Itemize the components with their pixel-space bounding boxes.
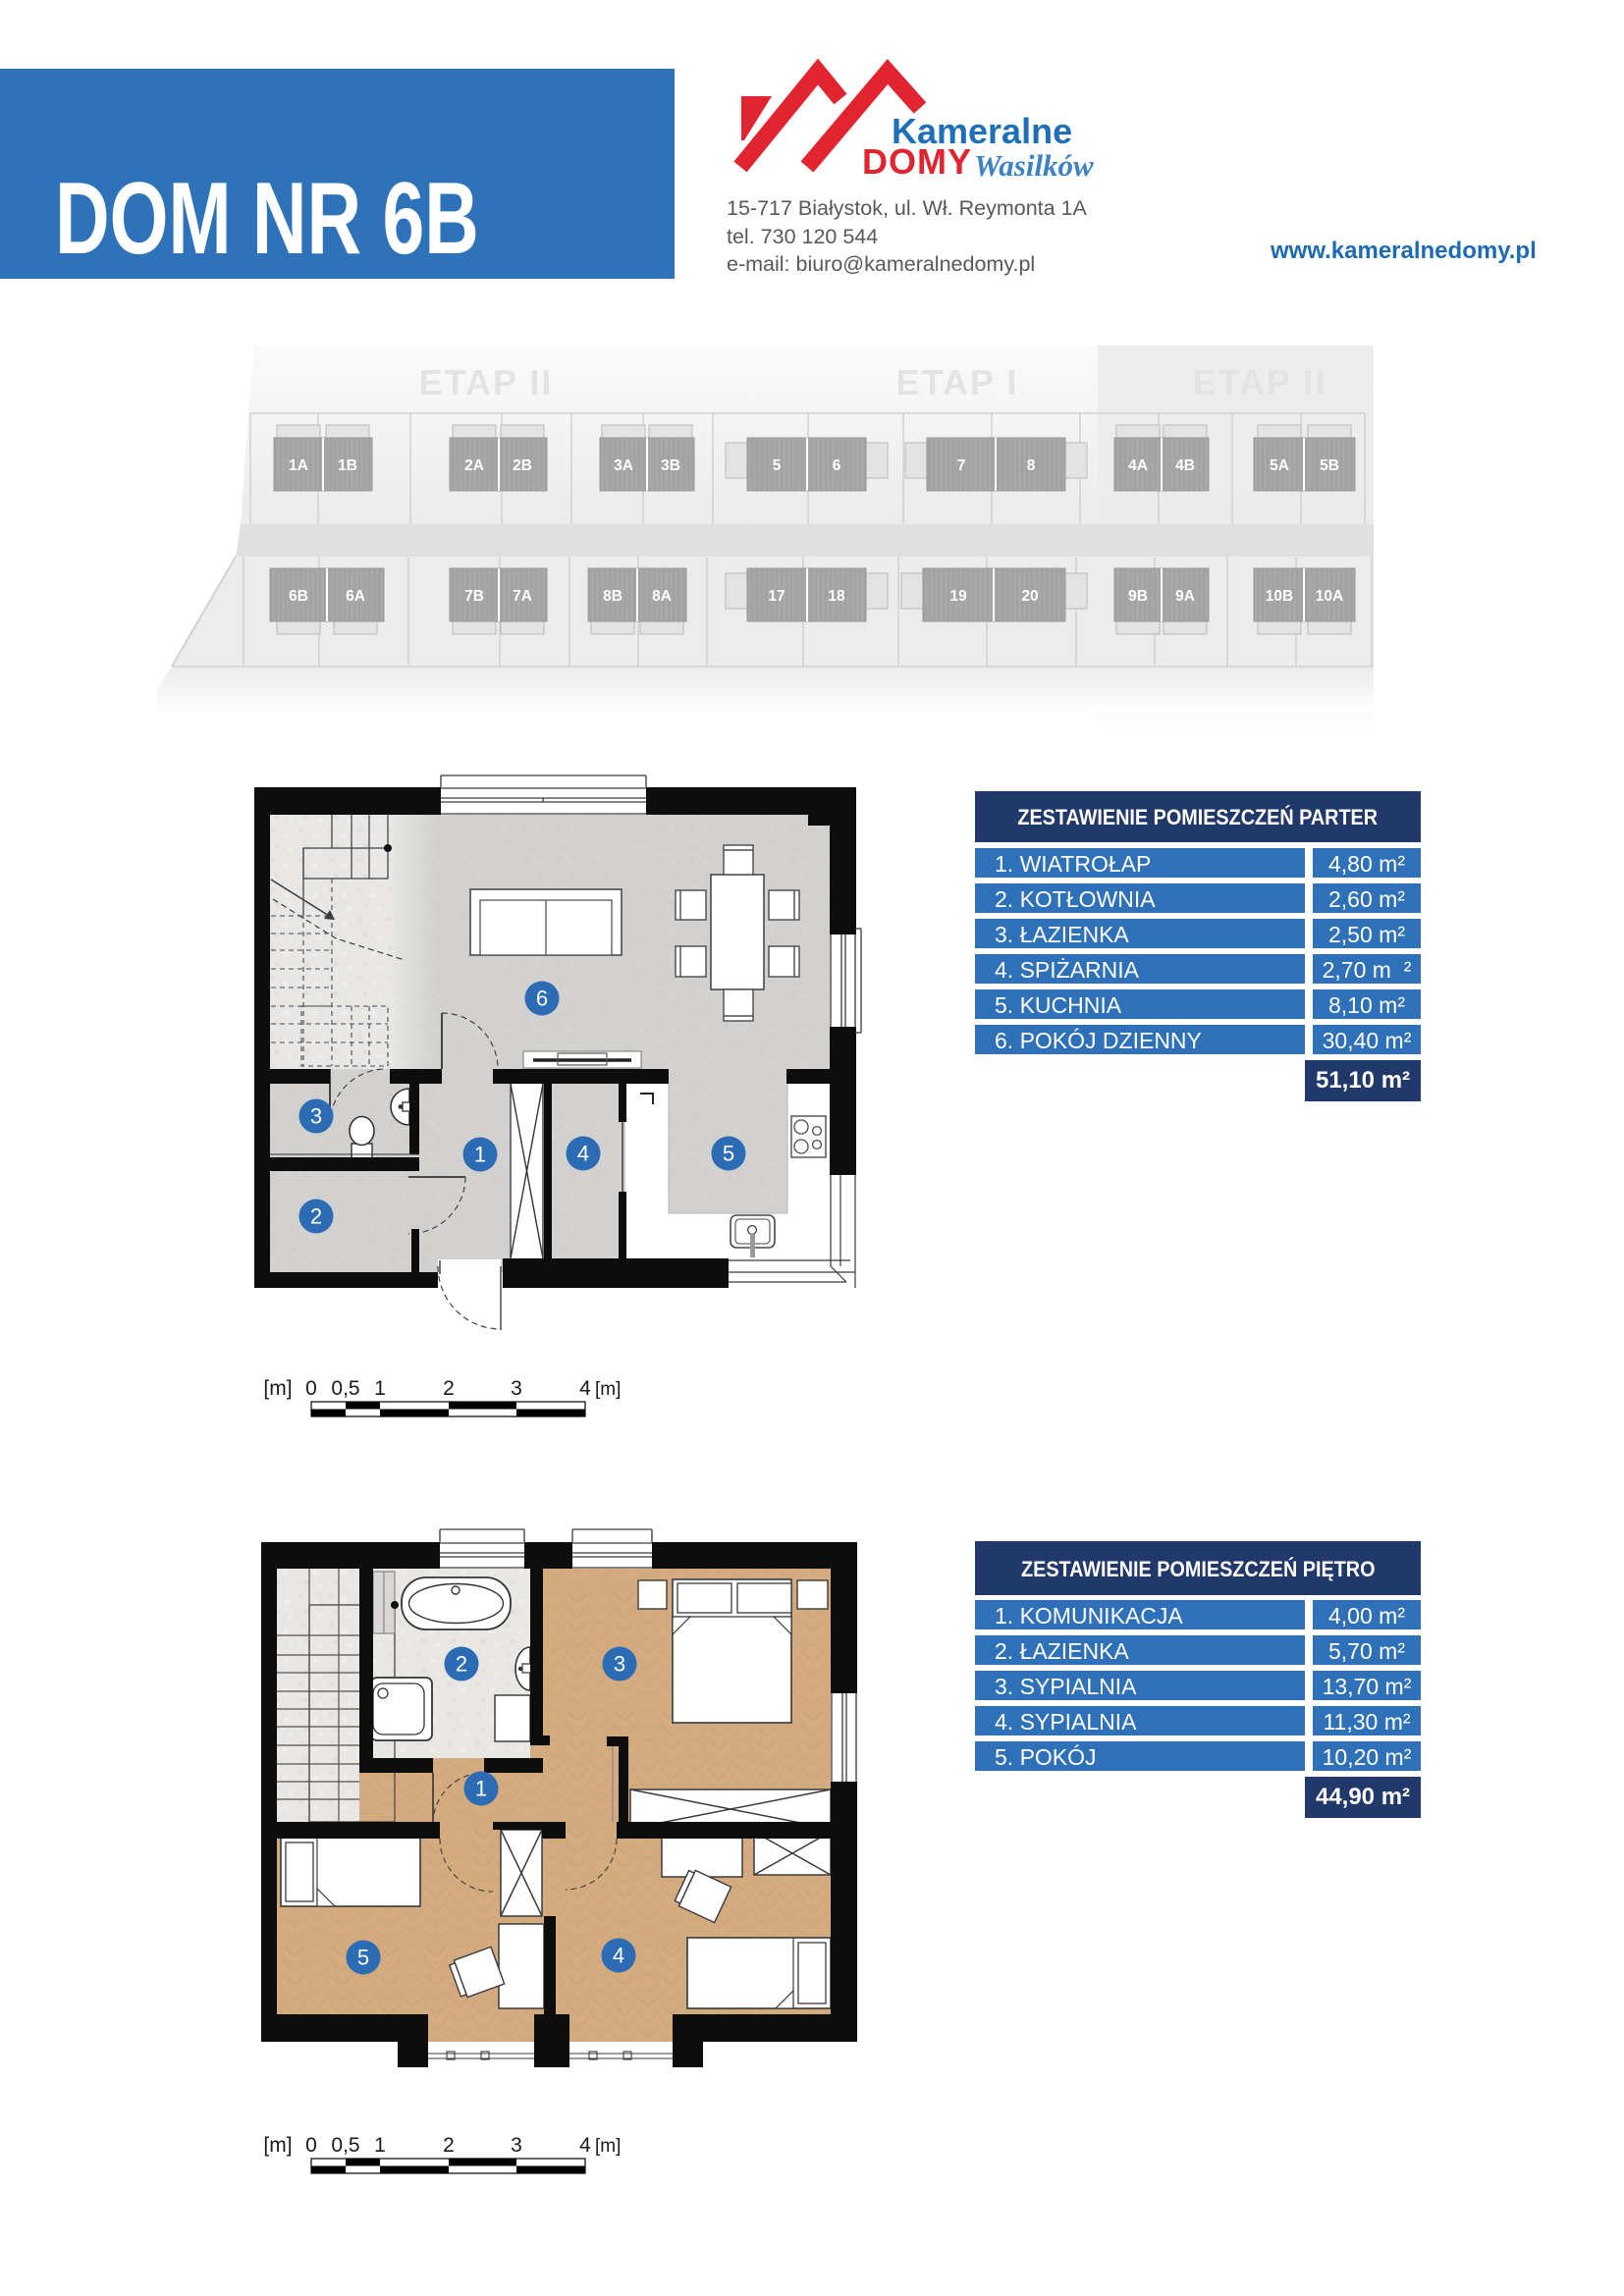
svg-text:[m]: [m] <box>595 1379 621 1400</box>
svg-text:Wasilków: Wasilków <box>974 148 1094 183</box>
svg-text:4: 4 <box>577 1142 589 1166</box>
svg-text:2B: 2B <box>513 457 532 474</box>
svg-text:7B: 7B <box>464 588 484 605</box>
svg-text:0: 0 <box>305 1377 317 1400</box>
svg-text:4A: 4A <box>1128 457 1148 474</box>
svg-text:3A: 3A <box>614 457 633 474</box>
svg-text:9A: 9A <box>1175 588 1195 605</box>
svg-text:6: 6 <box>833 457 841 474</box>
svg-text:4: 4 <box>579 2134 591 2157</box>
svg-text:8A: 8A <box>652 588 672 605</box>
svg-text:1: 1 <box>475 1777 487 1801</box>
svg-text:7: 7 <box>957 457 966 474</box>
svg-text:0,5: 0,5 <box>331 1377 359 1400</box>
svg-text:2: 2 <box>443 2134 455 2157</box>
svg-text:1: 1 <box>474 1143 486 1167</box>
svg-text:5: 5 <box>773 457 782 474</box>
svg-text:ETAP I: ETAP I <box>896 362 1019 402</box>
svg-text:[m]: [m] <box>263 2134 292 2157</box>
svg-text:5: 5 <box>357 1946 369 1970</box>
svg-text:10A: 10A <box>1316 588 1343 605</box>
svg-text:9B: 9B <box>1128 588 1148 605</box>
svg-text:1A: 1A <box>289 457 308 474</box>
svg-text:6A: 6A <box>346 588 365 605</box>
svg-text:DOMY: DOMY <box>862 141 972 182</box>
svg-text:8B: 8B <box>603 588 623 605</box>
svg-text:18: 18 <box>828 588 845 605</box>
svg-text:2: 2 <box>443 1377 455 1400</box>
svg-text:3: 3 <box>511 2134 522 2157</box>
svg-text:8: 8 <box>1027 457 1036 474</box>
svg-text:17: 17 <box>768 588 785 605</box>
svg-text:5A: 5A <box>1270 457 1289 474</box>
svg-text:20: 20 <box>1021 588 1038 605</box>
svg-text:1: 1 <box>374 1377 386 1400</box>
svg-text:4: 4 <box>613 1944 624 1968</box>
svg-text:6B: 6B <box>289 588 308 605</box>
svg-text:3: 3 <box>511 1377 522 1400</box>
svg-text:2: 2 <box>456 1652 467 1677</box>
svg-text:3: 3 <box>614 1652 625 1677</box>
svg-text:2A: 2A <box>464 457 484 474</box>
svg-text:ETAP II: ETAP II <box>419 362 554 402</box>
svg-text:10B: 10B <box>1266 588 1293 605</box>
svg-text:4B: 4B <box>1175 457 1195 474</box>
svg-text:[m]: [m] <box>263 1377 292 1400</box>
svg-text:5B: 5B <box>1320 457 1339 474</box>
svg-text:[m]: [m] <box>595 2136 621 2157</box>
svg-text:3B: 3B <box>661 457 680 474</box>
svg-text:3: 3 <box>310 1104 322 1129</box>
svg-text:6: 6 <box>536 987 548 1011</box>
svg-text:ETAP II: ETAP II <box>1193 362 1327 402</box>
svg-text:5: 5 <box>723 1142 734 1166</box>
svg-text:1B: 1B <box>338 457 357 474</box>
svg-text:1: 1 <box>374 2134 386 2157</box>
svg-text:19: 19 <box>949 588 967 605</box>
svg-text:2: 2 <box>310 1204 322 1229</box>
svg-text:4: 4 <box>579 1377 591 1400</box>
svg-text:0,5: 0,5 <box>331 2134 359 2157</box>
svg-text:0: 0 <box>305 2134 317 2157</box>
svg-text:7A: 7A <box>513 588 532 605</box>
